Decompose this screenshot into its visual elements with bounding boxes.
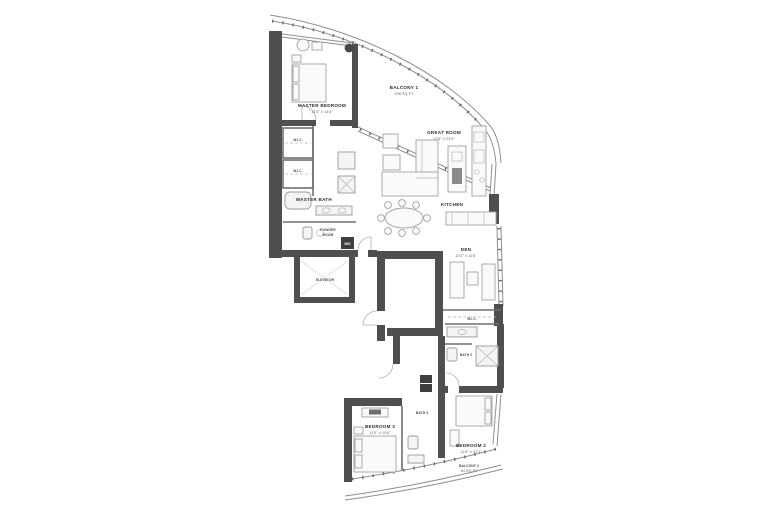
bedroom2-door-swing [446,373,459,386]
balcony2-label: BALCONY 2 [459,464,479,468]
powder-label-line1: POWDER [320,228,336,232]
den-window-ticks [499,228,501,304]
structural-column [345,44,354,53]
foyer-bottom-wall [294,297,355,303]
upper-bottom-wall-a [282,250,358,257]
wic1-label: W.I.C. [293,138,303,142]
wd-label: W/D [344,242,351,246]
bedroom-wing [354,317,498,472]
core-left-wall [377,251,385,311]
armchair-1 [383,134,398,148]
wic3-label: W.I.C. [467,317,477,321]
left-core-wall [269,31,282,258]
den-label: DEN [461,247,472,252]
balcony2-dims: 64 SQ FT [461,469,478,473]
dining-chair-8 [424,215,431,222]
bedroom3-dims: 11'0" x 14'6" [369,431,391,435]
den-window [501,226,503,306]
bath3-sink [408,455,424,463]
kitchen-counter-bottom [446,212,496,225]
bath2-toilet [447,348,457,361]
bedroom2-label: BEDROOM 2 [456,443,486,448]
bath3-toilet [408,436,418,449]
dining-chair-5 [399,230,406,237]
bedroom2-dims: 11'8" x 12'4" [460,450,482,454]
master-pillow-1 [293,66,299,82]
core-top-wall [377,251,443,259]
bedroom2-pillow-1 [485,398,491,410]
balcony1-dims: 398 SQ FT [395,92,415,96]
bedroom3-left-wall [344,398,352,482]
stack-washer [420,375,432,383]
master-bath-label: MASTER BATH [296,197,332,202]
den-window-inner [497,226,499,306]
dining-chair-1 [385,202,392,209]
great-room-dims: 17'6" x 23'4" [433,137,455,141]
core-bottom-wall [387,328,443,336]
dining-chair-3 [413,202,420,209]
kitchen-window [494,164,496,196]
bedroom2-pillow-2 [485,412,491,424]
bedroom3-label: BEDROOM 3 [365,424,395,429]
core-left-wall-lower [377,325,385,341]
master-bedroom-dims: 13'4" x 14'8" [311,110,333,114]
master-nightstand [292,55,301,62]
balcony2-railing-outer [345,469,503,500]
powder-toilet [303,227,312,239]
den-dims: 10'2" x 11'6" [455,254,477,258]
bath2-label: BATH 2 [460,353,472,357]
master-chair [297,39,309,51]
bath2-vanity [447,327,477,337]
master-vanity [316,206,352,215]
master-right-wall [352,44,358,128]
island-appliance [452,168,462,184]
bedroom2-top-wall-a [445,386,448,393]
kitchen-window-inner [490,164,492,196]
bedroom3-pillow-1 [355,439,362,452]
bedroom3-door-swing [379,364,393,378]
sofa-vertical [416,140,438,173]
powder-label-line2: ROOM [323,233,334,237]
corridor-left-wall [393,336,400,364]
bedroom2-window [497,394,501,446]
elevator-label: ELEVATOR [316,278,335,282]
bedroom2-window-inner [493,394,497,444]
armchair-2 [383,155,400,170]
sofa-horizontal [382,172,438,196]
step-wall [494,304,503,326]
linen-closet [338,152,355,169]
master-side-table [312,42,322,50]
wing-center-wall [438,336,445,458]
bedroom3-nightstand [354,427,363,434]
master-pillow-2 [293,84,299,100]
stack-dryer [420,384,432,392]
wic2-label: W.I.C. [293,169,303,173]
bedroom3-tv [369,410,381,415]
master-bottom-wall-a [282,120,316,126]
entry-door-swing [358,237,371,250]
dining-chair-4 [385,228,392,235]
bath3-label: BATH 3 [416,411,428,415]
balcony1-label: BALCONY 1 [390,85,419,90]
core-right-wall [435,251,443,336]
great-room-label: GREAT ROOM [427,130,461,135]
den-chair [467,272,478,285]
bedroom3-top-wall [344,398,402,406]
floor-plan-svg: MASTER BEDROOM 13'4" x 14'8" BALCONY 1 3… [0,0,768,528]
dining-chair-7 [378,215,385,222]
floor-plan-page: MASTER BEDROOM 13'4" x 14'8" BALCONY 1 3… [0,0,768,528]
dining-table [385,208,423,228]
upper-bottom-wall-b [368,250,377,257]
dining-chair-6 [413,228,420,235]
dining-chair-2 [399,200,406,207]
master-bedroom-label: MASTER BEDROOM [298,103,346,108]
kitchen-label: KITCHEN [441,202,464,207]
den-desk [450,262,464,298]
master-bedroom-furniture [292,39,326,102]
gallery-door-swing [363,311,377,325]
bedroom2-top-wall-b [459,386,503,393]
den-cabinet [482,264,495,300]
bedroom3-pillow-2 [355,455,362,468]
foyer-right-wall [349,257,355,302]
foyer-left-wall [294,257,300,302]
